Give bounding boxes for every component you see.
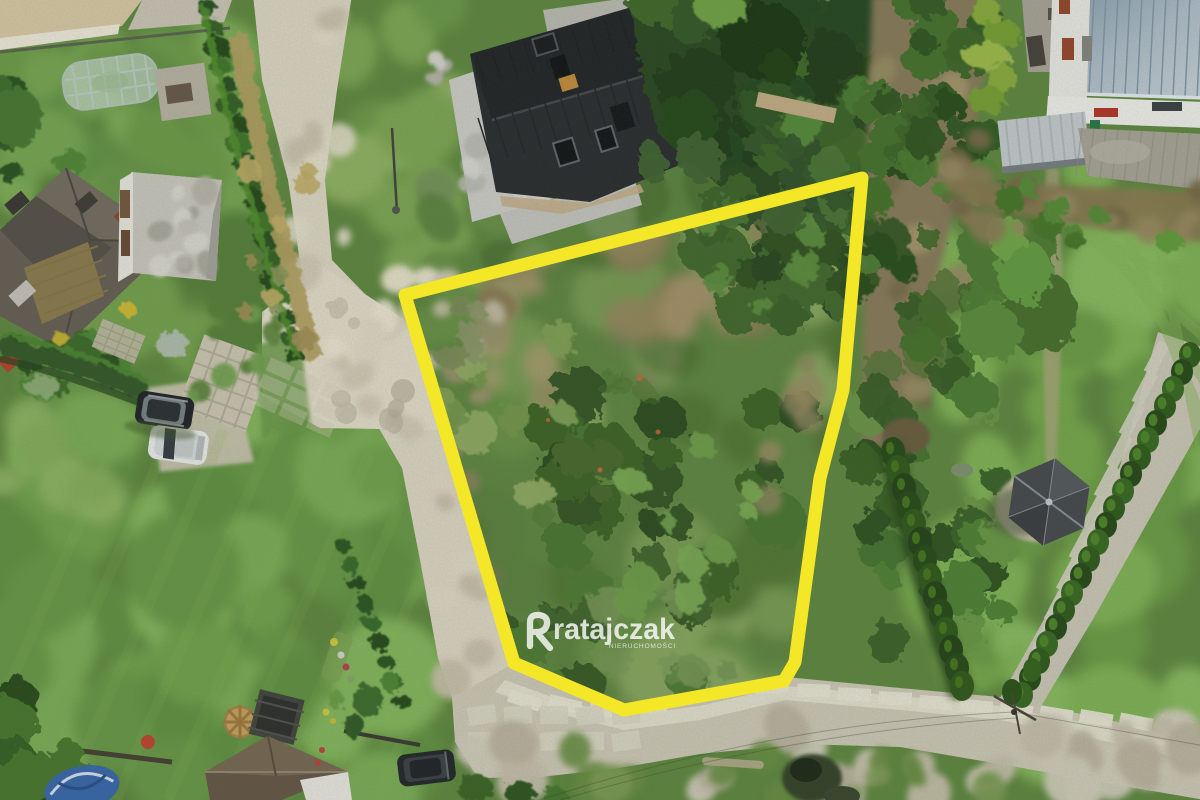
- svg-text:NIERUCHOMOŚCI: NIERUCHOMOŚCI: [609, 641, 676, 650]
- svg-text:ratajczak: ratajczak: [553, 613, 675, 646]
